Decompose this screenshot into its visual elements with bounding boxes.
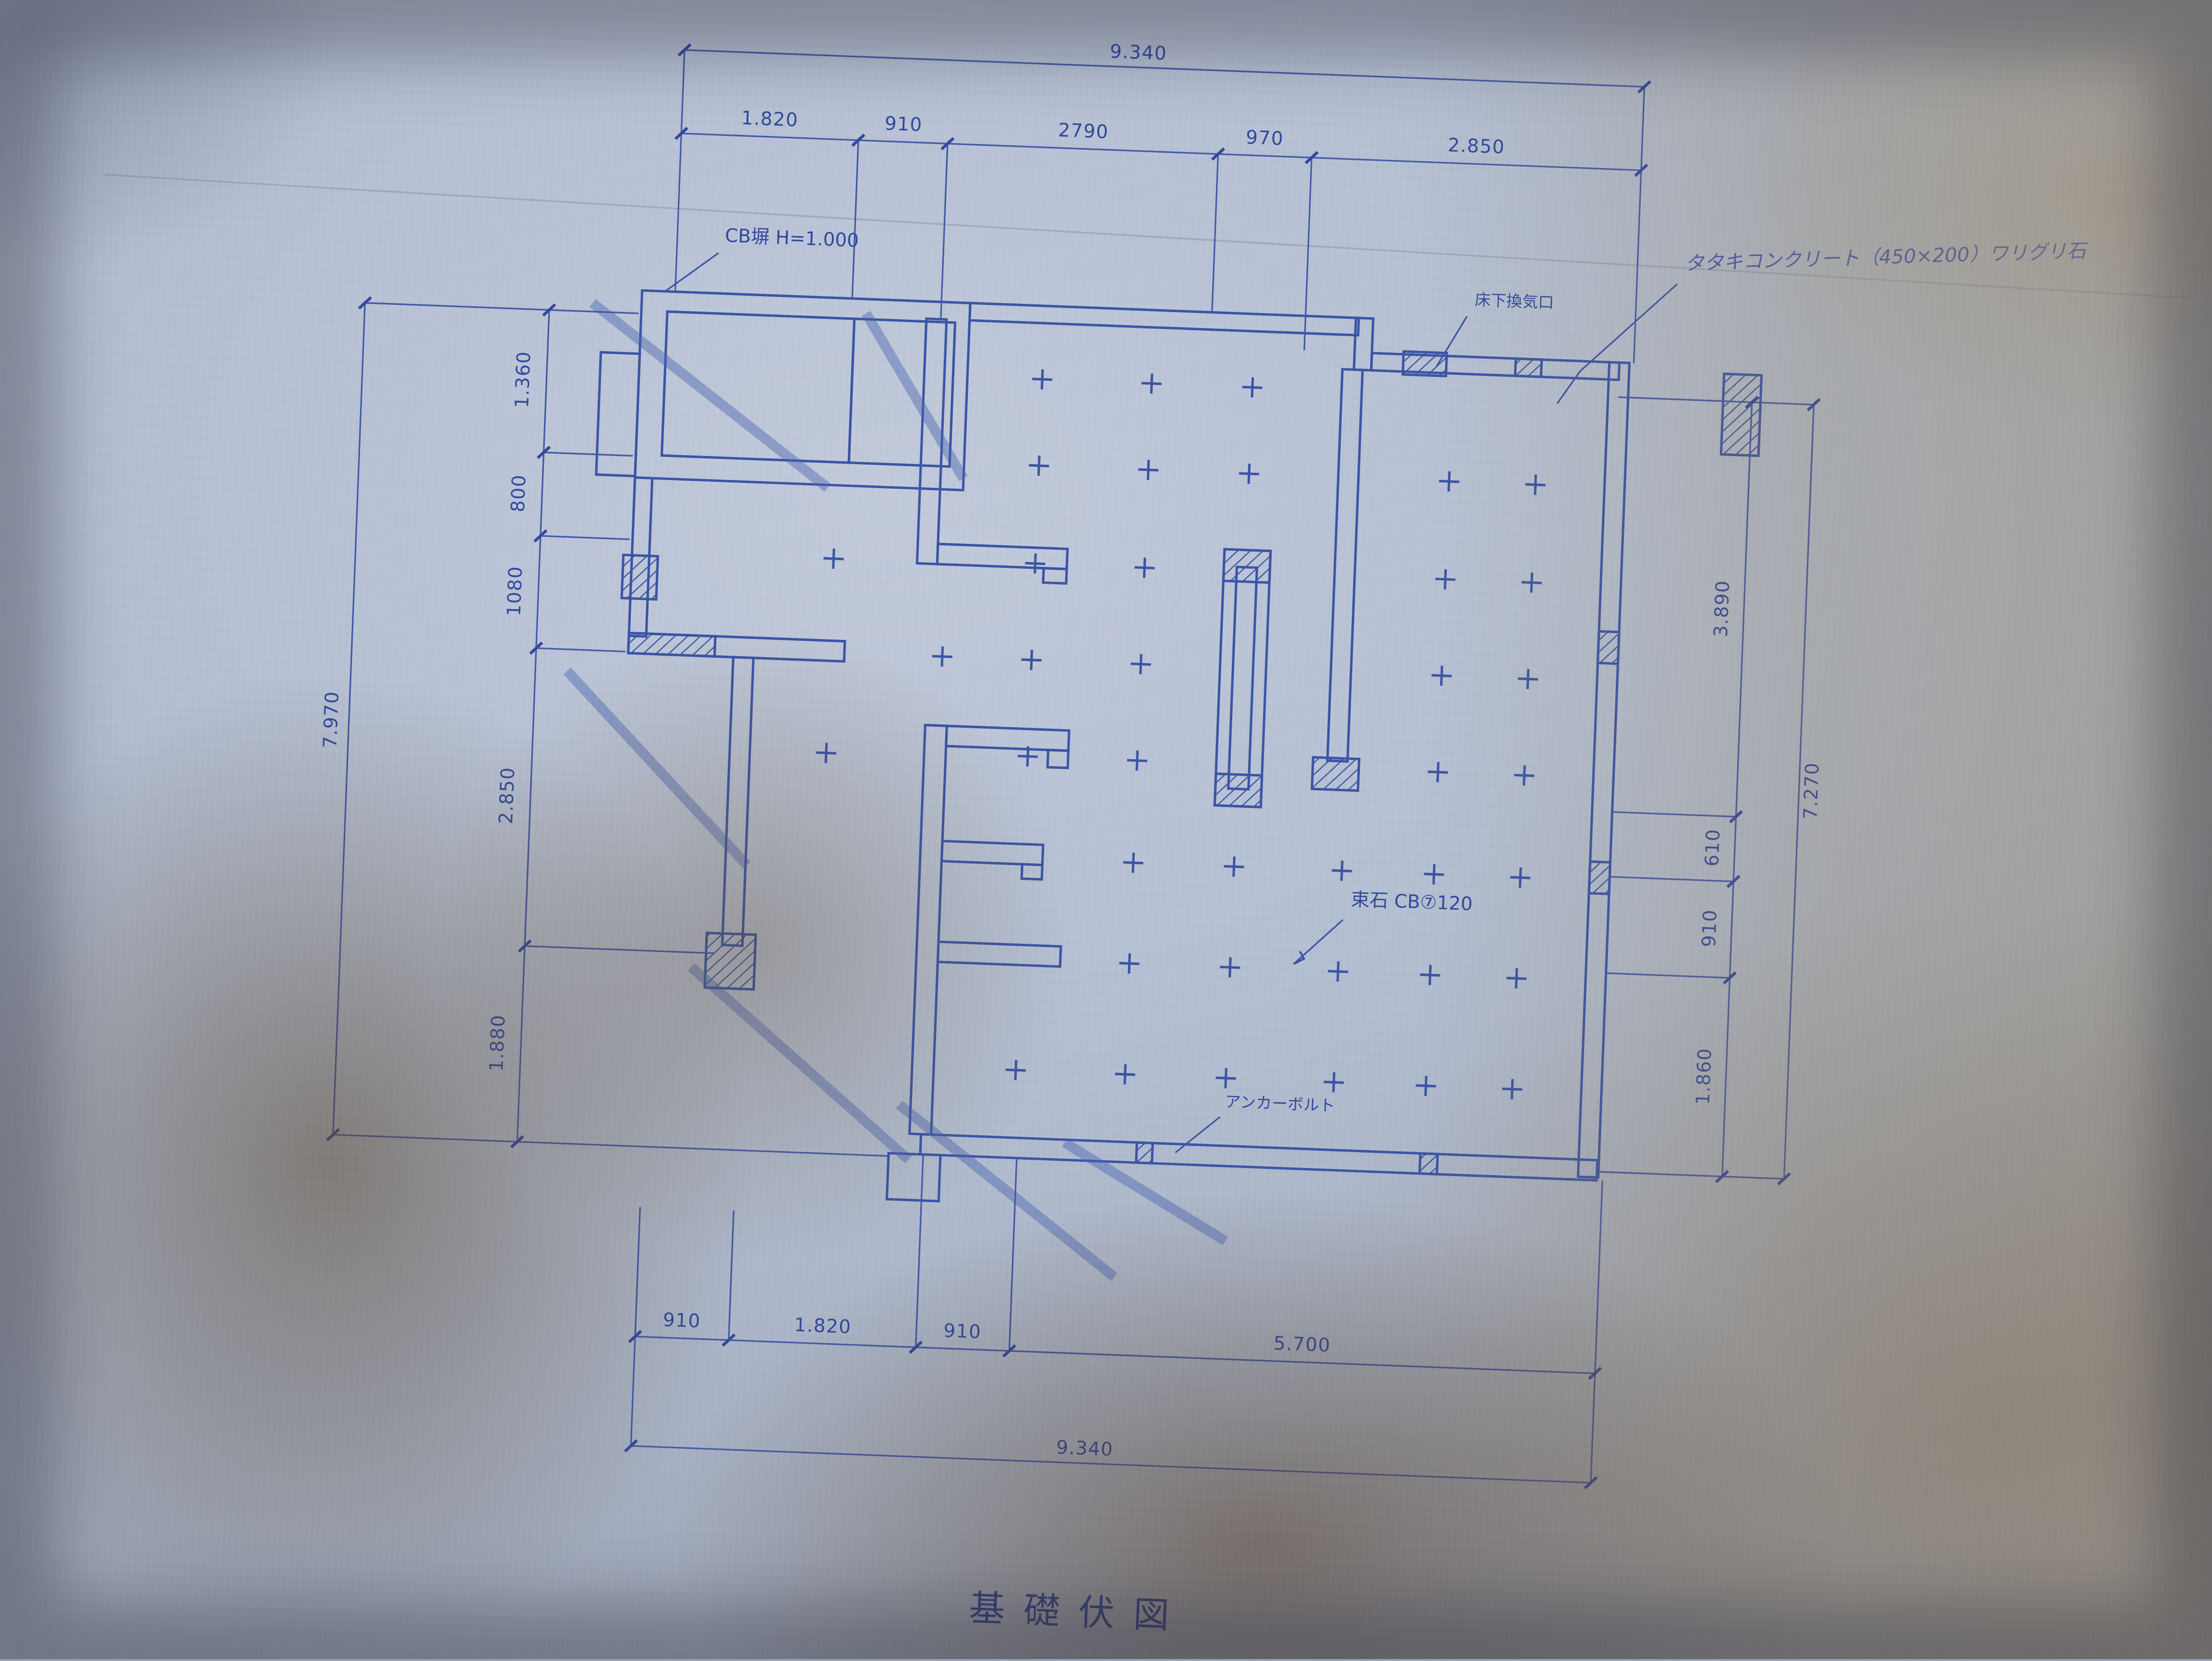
svg-text:910: 910 <box>1698 909 1721 948</box>
dimension-lines <box>322 38 1826 1490</box>
svg-text:1.880: 1.880 <box>486 1014 510 1072</box>
dim-right-total: 7.270 <box>1800 762 1824 820</box>
underfloor-vent <box>1403 351 1447 376</box>
foundation-plan-drawing: 9.340 1.820 910 2790 970 2.850 7.970 1.3… <box>0 0 2212 1659</box>
svg-text:2.850: 2.850 <box>1447 134 1505 158</box>
blueprint-photo: 9.340 1.820 910 2790 970 2.850 7.970 1.3… <box>0 0 2212 1659</box>
anchor-bolt-mark <box>1136 1143 1153 1163</box>
dimension-ticks <box>315 32 1831 1496</box>
vent-note: 床下換気口 <box>1475 290 1554 312</box>
svg-text:1.820: 1.820 <box>741 108 799 132</box>
svg-text:1.860: 1.860 <box>1692 1047 1716 1106</box>
svg-text:3.890: 3.890 <box>1710 579 1734 638</box>
paper-crease <box>102 175 2190 298</box>
svg-text:910: 910 <box>943 1320 982 1343</box>
dimension-labels: 9.340 1.820 910 2790 970 2.850 7.970 1.3… <box>293 12 1850 1487</box>
anchor-bolt-mark <box>1419 1154 1438 1174</box>
svg-text:5.700: 5.700 <box>1273 1333 1331 1357</box>
svg-text:800: 800 <box>507 474 530 513</box>
svg-text:910: 910 <box>662 1309 701 1332</box>
svg-text:2.850: 2.850 <box>495 767 519 825</box>
svg-text:910: 910 <box>884 113 923 136</box>
cb-wall-note: CB塀 H=1.000 <box>724 225 859 252</box>
svg-text:970: 970 <box>1246 127 1285 150</box>
dim-bottom-total: 9.340 <box>1056 1437 1114 1461</box>
anchor-bolt-note: アンカーボルト <box>1225 1092 1335 1115</box>
dim-top-total: 9.340 <box>1109 41 1167 65</box>
drawing-title: 基礎伏図 <box>968 1587 1189 1637</box>
post-stone-note: 束石 CB⑦120 <box>1350 889 1473 915</box>
note-labels: CB塀 H=1.000 床下換気口 タタキコンクリート（450×200）ワリグリ… <box>692 187 2090 1143</box>
corner-pier <box>1721 374 1761 456</box>
svg-text:1080: 1080 <box>503 566 527 617</box>
svg-text:610: 610 <box>1701 828 1724 867</box>
svg-text:1.820: 1.820 <box>794 1314 852 1338</box>
diagonal-smudges <box>544 302 1260 1281</box>
svg-text:2790: 2790 <box>1058 120 1109 143</box>
svg-text:1.360: 1.360 <box>511 350 535 409</box>
concrete-note: タタキコンクリート（450×200）ワリグリ石 <box>1684 239 2089 275</box>
dim-left-total: 7.970 <box>320 690 344 748</box>
